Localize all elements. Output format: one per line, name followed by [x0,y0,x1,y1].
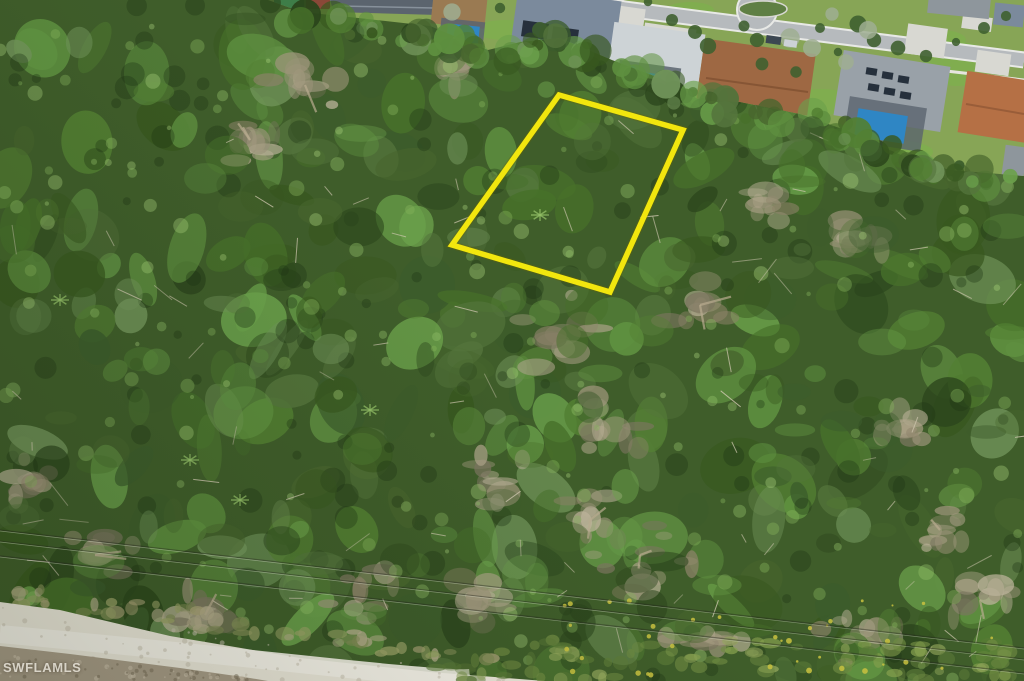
aerial-photo-canvas [0,0,1024,681]
watermark: SWFLAMLS [3,660,81,675]
photo-shading [0,0,1024,681]
aerial-photo: SWFLAMLS [0,0,1024,681]
